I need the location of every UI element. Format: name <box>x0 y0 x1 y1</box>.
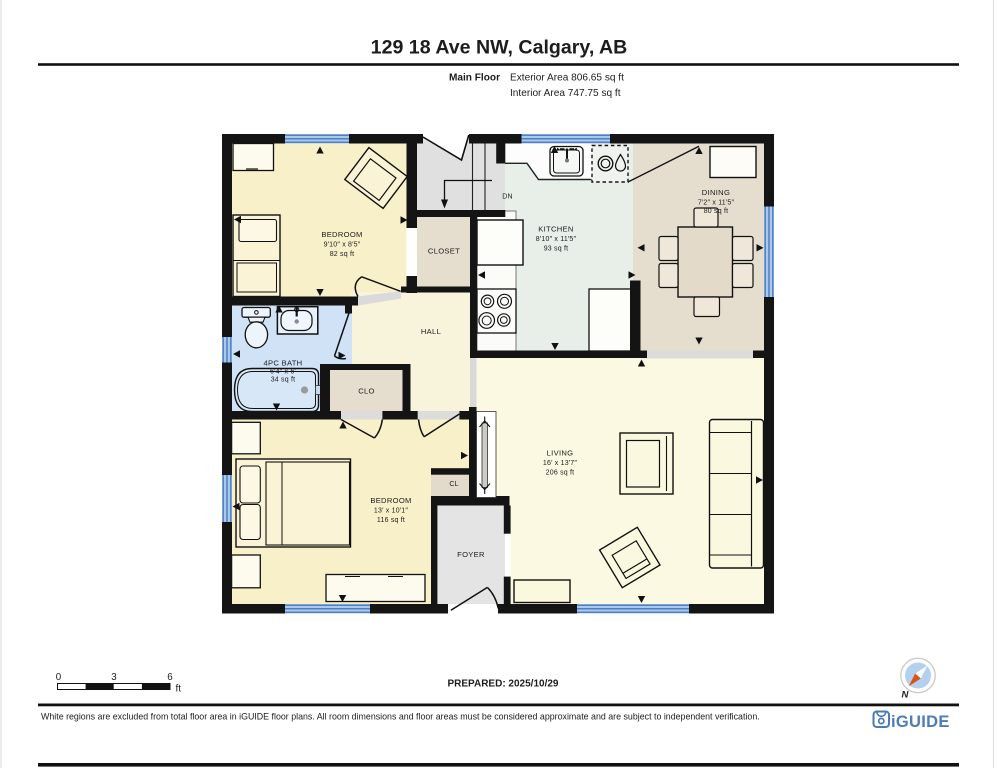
svg-text:129 18 Ave NW, Calgary, AB: 129 18 Ave NW, Calgary, AB <box>371 37 628 59</box>
svg-text:iGUIDE: iGUIDE <box>891 713 950 731</box>
svg-text:9′10″ x 8′5″: 9′10″ x 8′5″ <box>324 242 361 249</box>
svg-text:LIVING: LIVING <box>547 449 574 458</box>
svg-text:6′4″ x 6′: 6′4″ x 6′ <box>270 369 296 376</box>
svg-text:HALL: HALL <box>421 327 441 336</box>
svg-text:34 sq ft: 34 sq ft <box>271 377 296 384</box>
svg-text:BEDROOM: BEDROOM <box>370 496 411 505</box>
svg-text:7′2″ x 11′5″: 7′2″ x 11′5″ <box>698 200 735 207</box>
svg-text:CLOSET: CLOSET <box>428 247 460 256</box>
svg-text:BEDROOM: BEDROOM <box>321 230 362 239</box>
svg-text:Interior Area 747.75 sq ft: Interior Area 747.75 sq ft <box>510 88 621 99</box>
svg-text:6: 6 <box>167 672 173 683</box>
svg-text:93 sq ft: 93 sq ft <box>544 246 569 253</box>
svg-text:White regions are excluded fro: White regions are excluded from total fl… <box>41 712 760 722</box>
svg-text:80 sq ft: 80 sq ft <box>704 208 729 215</box>
svg-text:FOYER: FOYER <box>457 550 485 559</box>
svg-text:4PC BATH: 4PC BATH <box>264 359 303 368</box>
svg-text:13′ x 10′1″: 13′ x 10′1″ <box>374 508 408 515</box>
svg-text:PREPARED: 2025/10/29: PREPARED: 2025/10/29 <box>448 679 559 690</box>
svg-text:0: 0 <box>56 672 62 683</box>
svg-text:Exterior Area 806.65 sq ft: Exterior Area 806.65 sq ft <box>510 73 624 84</box>
svg-text:CLO: CLO <box>358 387 375 396</box>
svg-text:DINING: DINING <box>702 188 730 197</box>
svg-text:82 sq ft: 82 sq ft <box>330 251 355 258</box>
svg-text:DN: DN <box>502 194 513 201</box>
svg-text:Main Floor: Main Floor <box>449 73 500 84</box>
svg-text:N: N <box>902 690 910 701</box>
svg-text:ft: ft <box>176 684 182 695</box>
svg-text:206 sq ft: 206 sq ft <box>546 470 575 477</box>
svg-text:3: 3 <box>111 672 117 683</box>
svg-text:116 sq ft: 116 sq ft <box>377 517 405 524</box>
svg-text:CL: CL <box>449 481 458 488</box>
svg-text:16′ x 13′7″: 16′ x 13′7″ <box>543 460 577 467</box>
svg-text:8′10″ x 11′5″: 8′10″ x 11′5″ <box>536 236 577 243</box>
svg-text:KITCHEN: KITCHEN <box>538 225 573 234</box>
